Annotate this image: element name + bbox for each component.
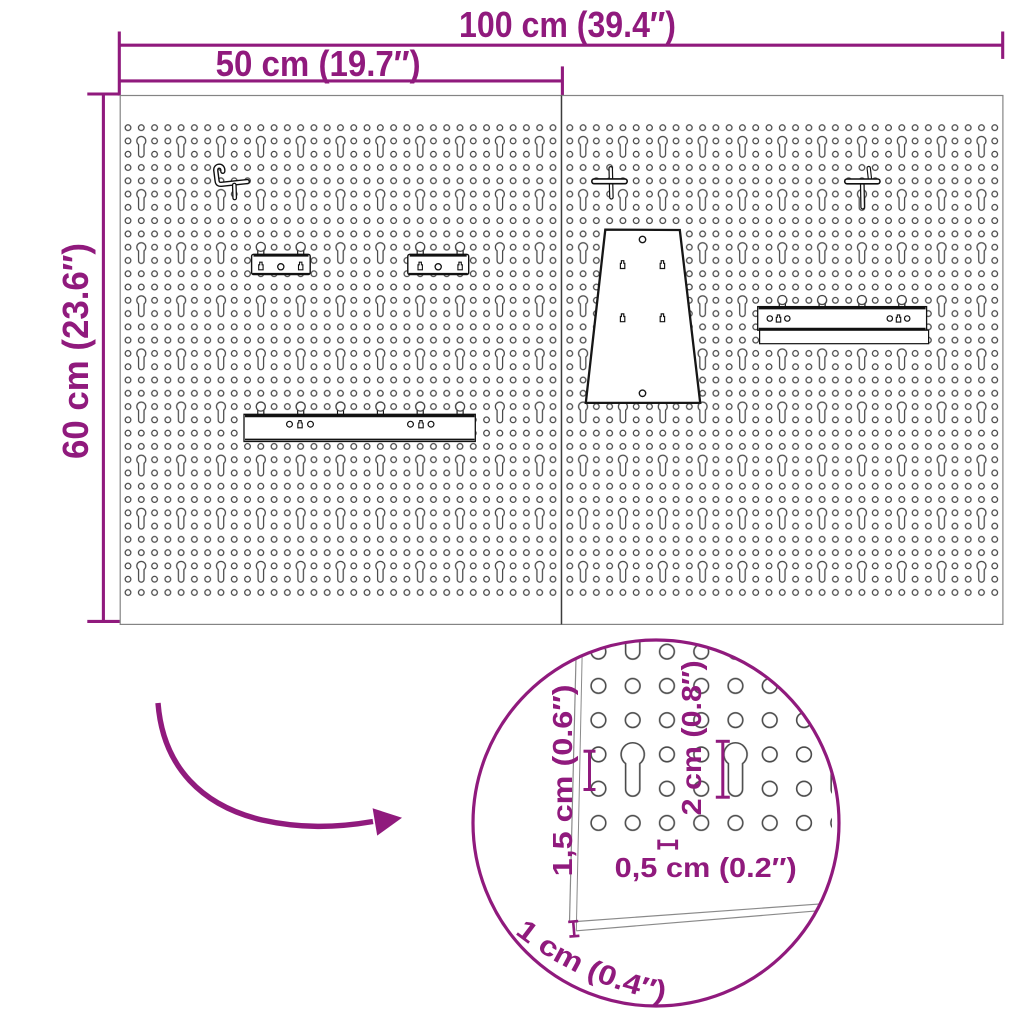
svg-text:60 cm (23.6″): 60 cm (23.6″) [55, 243, 96, 459]
svg-text:1,5 cm (0.6″): 1,5 cm (0.6″) [547, 684, 578, 876]
svg-text:50 cm (19.7″): 50 cm (19.7″) [216, 43, 421, 84]
svg-text:2 cm (0.8″): 2 cm (0.8″) [676, 660, 707, 815]
svg-text:100 cm (39.4″): 100 cm (39.4″) [459, 4, 676, 45]
svg-text:0,5 cm (0.2″): 0,5 cm (0.2″) [615, 852, 797, 883]
